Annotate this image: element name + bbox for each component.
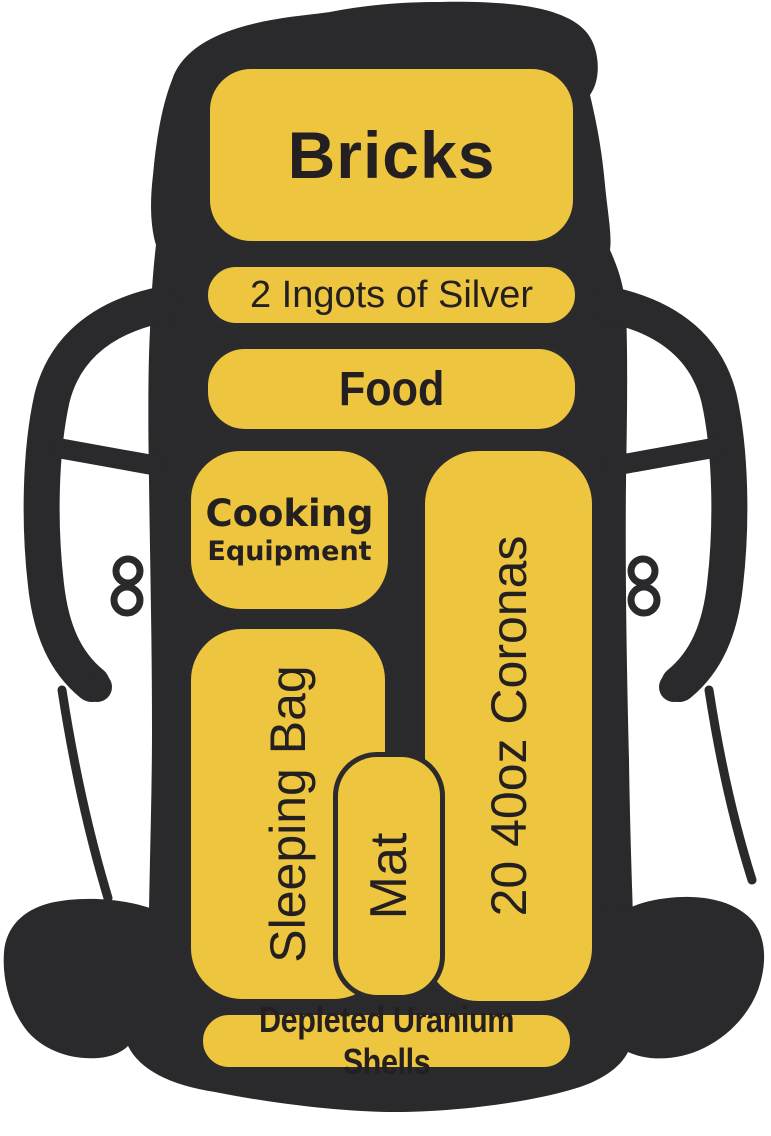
strap-tip-left <box>82 672 112 702</box>
strap-webbing-left <box>62 690 108 898</box>
gear-loop-left-bottom <box>114 587 140 613</box>
compartment-label: 20 40oz Coronas <box>480 536 538 917</box>
strap-crossbar-right <box>613 448 713 466</box>
shoulder-strap-left <box>42 305 160 684</box>
gear-loop-right-top <box>631 559 655 583</box>
strap-crossbar-left <box>58 448 158 466</box>
compartment-label: Sleeping Bag <box>259 665 317 962</box>
gear-loop-right-bottom <box>631 587 657 613</box>
gear-loop-left-top <box>116 559 140 583</box>
strap-webbing-right <box>709 690 752 880</box>
compartment-label: Bricks <box>288 117 496 193</box>
compartment-label: Cooking <box>205 493 373 536</box>
compartment-silver-ingots: 2 Ingots of Silver <box>203 262 580 328</box>
compartment-label: Food <box>339 362 445 417</box>
compartment-mat: Mat <box>333 752 445 1000</box>
compartment-bricks: Bricks <box>205 64 578 246</box>
backpack-diagram: Bricks 2 Ingots of Silver Food Cooking E… <box>0 0 771 1136</box>
compartment-label: 2 Ingots of Silver <box>250 274 533 317</box>
strap-tip-right <box>659 672 689 702</box>
compartment-label: Equipment <box>207 536 371 567</box>
compartment-label: Mat <box>359 833 419 920</box>
compartment-food: Food <box>203 344 580 434</box>
compartment-label: Depleted Uranium Shells <box>231 999 543 1083</box>
shoulder-strap-right <box>611 305 729 684</box>
compartment-cooking-equipment: Cooking Equipment <box>186 446 393 614</box>
compartment-uranium-shells: Depleted Uranium Shells <box>198 1010 575 1072</box>
compartment-coronas: 20 40oz Coronas <box>420 446 597 1006</box>
